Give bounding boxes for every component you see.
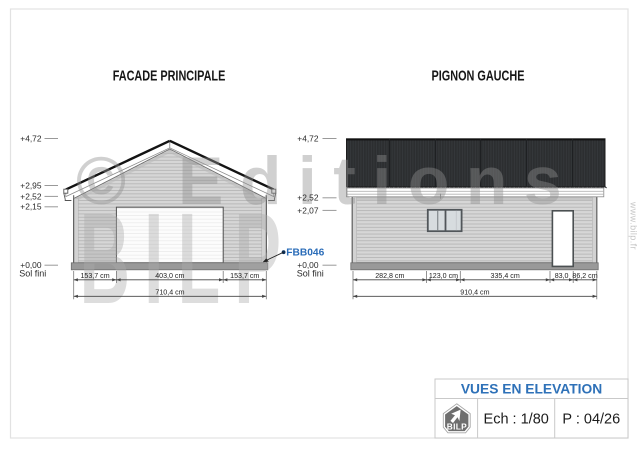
svg-text:335,4 cm: 335,4 cm — [491, 272, 520, 280]
svg-text:403,0 cm: 403,0 cm — [155, 272, 184, 280]
svg-text:+2,15: +2,15 — [20, 202, 42, 212]
svg-text:153,7 cm: 153,7 cm — [80, 272, 109, 280]
svg-text:123,0 cm: 123,0 cm — [429, 272, 458, 280]
svg-text:+2,52: +2,52 — [20, 191, 42, 201]
svg-text:910,4 cm: 910,4 cm — [460, 289, 489, 297]
svg-text:FACADE PRINCIPALE: FACADE PRINCIPALE — [113, 67, 226, 84]
svg-text:P : 04/26: P : 04/26 — [562, 411, 620, 427]
svg-text:+4,72: +4,72 — [20, 133, 42, 143]
svg-text:+4,72: +4,72 — [297, 133, 319, 143]
svg-text:BILP: BILP — [80, 187, 295, 331]
svg-text:710,4 cm: 710,4 cm — [155, 289, 184, 297]
svg-text:FBB046: FBB046 — [286, 248, 324, 259]
svg-text:VUES EN ELEVATION: VUES EN ELEVATION — [461, 382, 602, 397]
svg-text:+2,07: +2,07 — [297, 205, 319, 215]
svg-text:Sol fini: Sol fini — [297, 269, 324, 279]
svg-text:153,7 cm: 153,7 cm — [230, 272, 259, 280]
svg-text:www.bilp.fr: www.bilp.fr — [629, 201, 639, 250]
svg-text:282,8 cm: 282,8 cm — [375, 272, 404, 280]
svg-text:Ech : 1/80: Ech : 1/80 — [484, 411, 549, 427]
svg-text:+2,52: +2,52 — [297, 193, 319, 203]
svg-text:Sol fini: Sol fini — [19, 269, 46, 279]
svg-text:BILP: BILP — [447, 421, 467, 431]
svg-text:86,2 cm: 86,2 cm — [572, 272, 597, 280]
svg-text:+2,95: +2,95 — [20, 180, 42, 190]
svg-text:83,0: 83,0 — [555, 272, 569, 280]
svg-text:PIGNON GAUCHE: PIGNON GAUCHE — [432, 67, 525, 84]
